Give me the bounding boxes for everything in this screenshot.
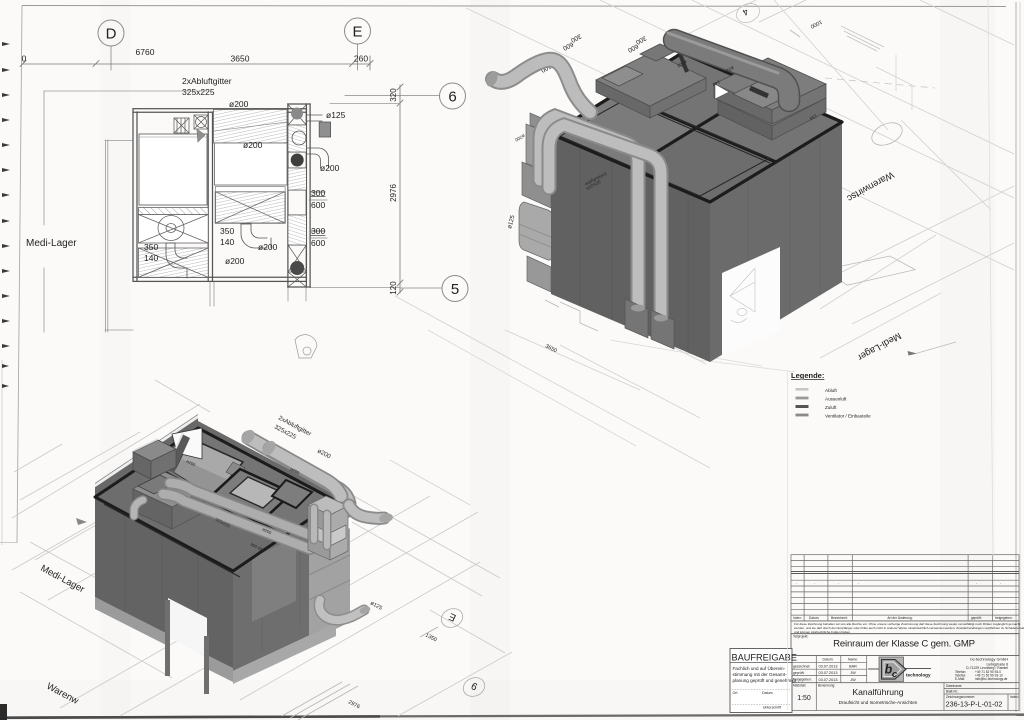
svg-text:ø200: ø200 bbox=[320, 163, 340, 173]
svg-text:geprüft:: geprüft: bbox=[971, 616, 982, 620]
svg-text:140: 140 bbox=[220, 237, 234, 247]
svg-text:-: - bbox=[814, 581, 815, 585]
svg-text:Dateiname:: Dateiname: bbox=[946, 684, 962, 688]
svg-text:-: - bbox=[838, 581, 839, 585]
svg-text:c: c bbox=[892, 669, 898, 680]
svg-text:4: 4 bbox=[741, 7, 750, 18]
svg-text:Medi-Lager: Medi-Lager bbox=[26, 238, 77, 249]
svg-text:140: 140 bbox=[144, 253, 158, 263]
svg-text:3650: 3650 bbox=[231, 54, 250, 64]
svg-text:ø125: ø125 bbox=[369, 600, 383, 611]
svg-text:Datum: Datum bbox=[762, 691, 773, 695]
svg-text:Legende:: Legende: bbox=[791, 371, 824, 380]
svg-text:Medi-Lager: Medi-Lager bbox=[39, 563, 87, 595]
svg-text:0: 0 bbox=[22, 54, 27, 64]
svg-text:Blatt-Nr.:: Blatt-Nr.: bbox=[946, 689, 959, 693]
svg-text:E: E bbox=[447, 610, 458, 623]
svg-text:Datum:: Datum: bbox=[823, 658, 834, 662]
svg-text:-: - bbox=[976, 581, 977, 585]
svg-text:E: E bbox=[352, 24, 362, 41]
svg-text:236-13-P-L-01-02: 236-13-P-L-01-02 bbox=[946, 700, 1003, 709]
svg-text:Bezeichnet:: Bezeichnet: bbox=[831, 616, 848, 620]
svg-text:300: 300 bbox=[311, 226, 325, 236]
svg-text:Teilprojekt:: Teilprojekt: bbox=[793, 635, 808, 639]
svg-text:freigegeben:: freigegeben: bbox=[995, 616, 1013, 620]
svg-text:JW: JW bbox=[850, 678, 856, 682]
svg-text:bc-technology GmbH: bc-technology GmbH bbox=[970, 657, 1008, 662]
svg-text:BAUFREIGABE: BAUFREIGABE bbox=[732, 653, 797, 663]
svg-text:Fachlich und auf Überein-: Fachlich und auf Überein- bbox=[733, 665, 786, 671]
svg-text:info@bc-technology.de: info@bc-technology.de bbox=[975, 677, 1008, 681]
svg-text:5: 5 bbox=[451, 281, 459, 298]
svg-text:1000: 1000 bbox=[809, 18, 823, 29]
svg-text:1350: 1350 bbox=[424, 632, 438, 643]
svg-text:JW: JW bbox=[850, 671, 856, 675]
svg-text:120: 120 bbox=[389, 281, 398, 295]
svg-text:Ort: Ort bbox=[733, 691, 738, 695]
svg-text:6760: 6760 bbox=[136, 47, 155, 57]
svg-text:Name:: Name: bbox=[848, 658, 858, 662]
svg-text:Zeichnungsnummer:: Zeichnungsnummer: bbox=[946, 695, 975, 699]
svg-text:ø200: ø200 bbox=[243, 140, 263, 150]
svg-text:-: - bbox=[796, 581, 797, 585]
svg-text:03.07.2013: 03.07.2013 bbox=[818, 665, 837, 669]
svg-text:3650: 3650 bbox=[544, 343, 558, 354]
svg-text:Datum:: Datum: bbox=[809, 616, 819, 620]
svg-text:stimmung mit der Gesamt-: stimmung mit der Gesamt- bbox=[733, 672, 788, 677]
svg-text:Warenwirtsc: Warenwirtsc bbox=[845, 169, 896, 204]
svg-text:Benennung:: Benennung: bbox=[818, 684, 835, 688]
svg-text:325x225: 325x225 bbox=[182, 87, 215, 97]
svg-text:ø200: ø200 bbox=[258, 242, 278, 252]
svg-text:260: 260 bbox=[354, 54, 368, 64]
svg-text:320: 320 bbox=[389, 88, 398, 102]
svg-text:2976: 2976 bbox=[389, 184, 398, 202]
svg-text:Index:: Index: bbox=[1010, 695, 1019, 699]
svg-text:ø200: ø200 bbox=[316, 448, 332, 461]
svg-text:Abluft: Abluft bbox=[825, 388, 837, 393]
svg-text:ø200: ø200 bbox=[225, 256, 245, 266]
svg-text:Maßstab:: Maßstab: bbox=[793, 684, 806, 688]
svg-text:-: - bbox=[858, 581, 859, 585]
svg-text:1:50: 1:50 bbox=[797, 695, 811, 702]
svg-text:Zuluft: Zuluft bbox=[825, 405, 837, 410]
svg-text:BAR: BAR bbox=[849, 665, 857, 669]
svg-text:03.07.2013: 03.07.2013 bbox=[818, 678, 837, 682]
svg-text:Kanalführung: Kanalführung bbox=[852, 687, 903, 697]
svg-text:03.07.2013: 03.07.2013 bbox=[818, 671, 837, 675]
svg-text:2xAbluftgitter: 2xAbluftgitter bbox=[182, 76, 232, 86]
svg-text:350: 350 bbox=[144, 242, 158, 252]
svg-text:ø200: ø200 bbox=[514, 133, 526, 143]
svg-text:Index:: Index: bbox=[793, 616, 802, 620]
svg-text:Reinraum der Klasse C gem. GMP: Reinraum der Klasse C gem. GMP bbox=[833, 639, 975, 650]
svg-text:600: 600 bbox=[311, 200, 325, 210]
svg-text:technology: technology bbox=[906, 673, 931, 678]
svg-text:ø200: ø200 bbox=[229, 99, 249, 109]
svg-text:Unterschrift: Unterschrift bbox=[763, 706, 781, 710]
svg-text:gezeichnet:: gezeichnet: bbox=[793, 664, 810, 668]
svg-text:D: D bbox=[106, 26, 117, 43]
svg-text:Draufsicht und Isometrische-An: Draufsicht und Isometrische-Ansichten bbox=[839, 700, 918, 705]
svg-text:ø125: ø125 bbox=[326, 110, 346, 120]
svg-text:geprüft:: geprüft: bbox=[793, 671, 805, 675]
svg-text:600: 600 bbox=[626, 42, 639, 53]
svg-text:Aussenluft: Aussenluft bbox=[825, 397, 847, 402]
svg-text:350: 350 bbox=[220, 226, 234, 236]
svg-text:E-Mail:: E-Mail: bbox=[955, 677, 965, 681]
svg-text:Ventilator / Einbauteile: Ventilator / Einbauteile bbox=[825, 414, 871, 419]
svg-text:-: - bbox=[1000, 581, 1001, 585]
svg-text:600: 600 bbox=[561, 40, 574, 51]
svg-text:600: 600 bbox=[311, 238, 325, 248]
svg-text:300: 300 bbox=[311, 188, 325, 198]
svg-text:6: 6 bbox=[448, 89, 456, 106]
svg-text:Art der Änderung:: Art der Änderung: bbox=[887, 616, 912, 620]
